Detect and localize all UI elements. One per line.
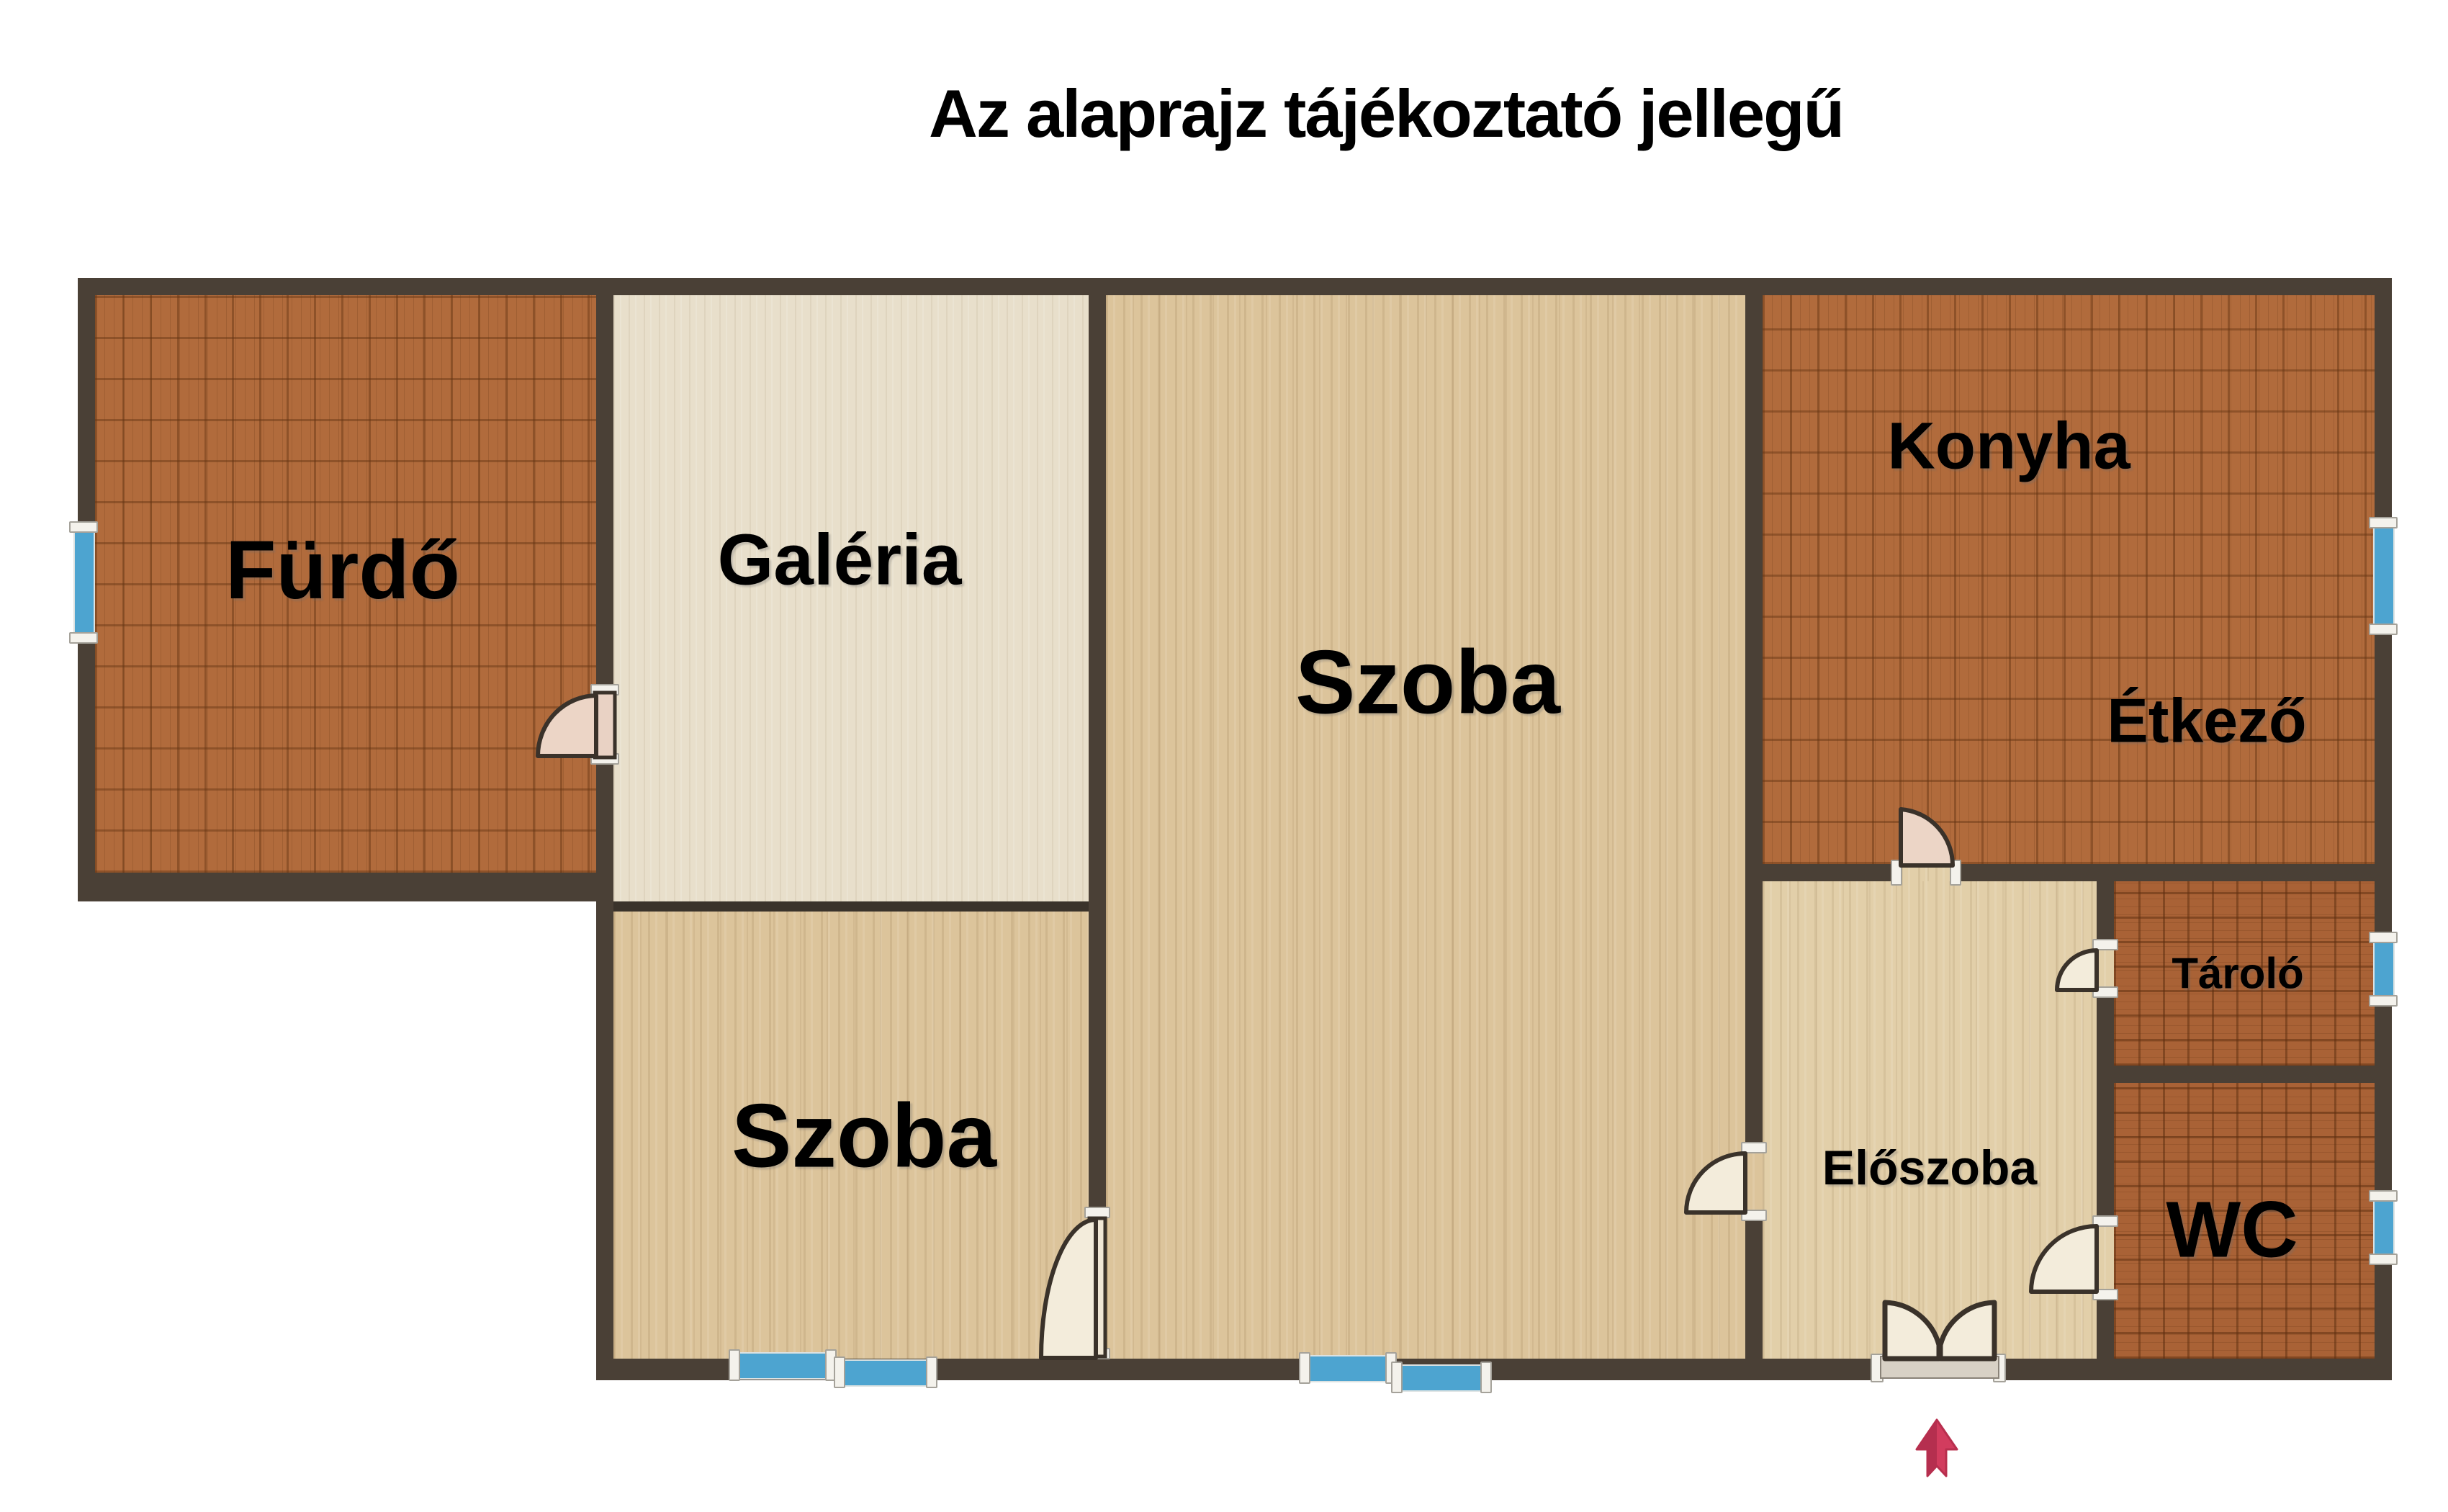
room-label-etkezo: Étkező (2107, 686, 2306, 757)
furdo-door-swing (538, 696, 596, 756)
room-label-konyha: Konyha (1887, 409, 2130, 485)
room-label-furdo: Fürdő (225, 523, 460, 618)
room-label-galeria: Galéria (717, 519, 961, 602)
room-label-szoba-also: Szoba (732, 1085, 996, 1188)
room-label-szoba-nagy: Szoba (1295, 631, 1560, 734)
szoba-eloszoba-door-swing (1686, 1153, 1745, 1212)
entrance-door-right-leaf (1940, 1302, 1994, 1359)
room-label-wc: WC (2166, 1184, 2298, 1276)
entrance-door-left-leaf (1885, 1302, 1939, 1359)
page-title: Az alaprajz tájékoztató jellegű (929, 75, 1843, 153)
szoba-also-door-swing (1041, 1220, 1096, 1358)
door-overlay (0, 0, 2448, 1512)
wc-door-swing (2031, 1226, 2097, 1292)
room-label-eloszoba: Előszoba (1822, 1140, 2038, 1196)
room-label-tarolo: Tároló (2172, 949, 2303, 999)
etkezo-door-swing (1901, 809, 1953, 865)
tarolo-door-swing (2057, 950, 2097, 990)
floorplan-page: Az alaprajz tájékoztató jellegű Fürdő Ga… (0, 0, 2448, 1512)
